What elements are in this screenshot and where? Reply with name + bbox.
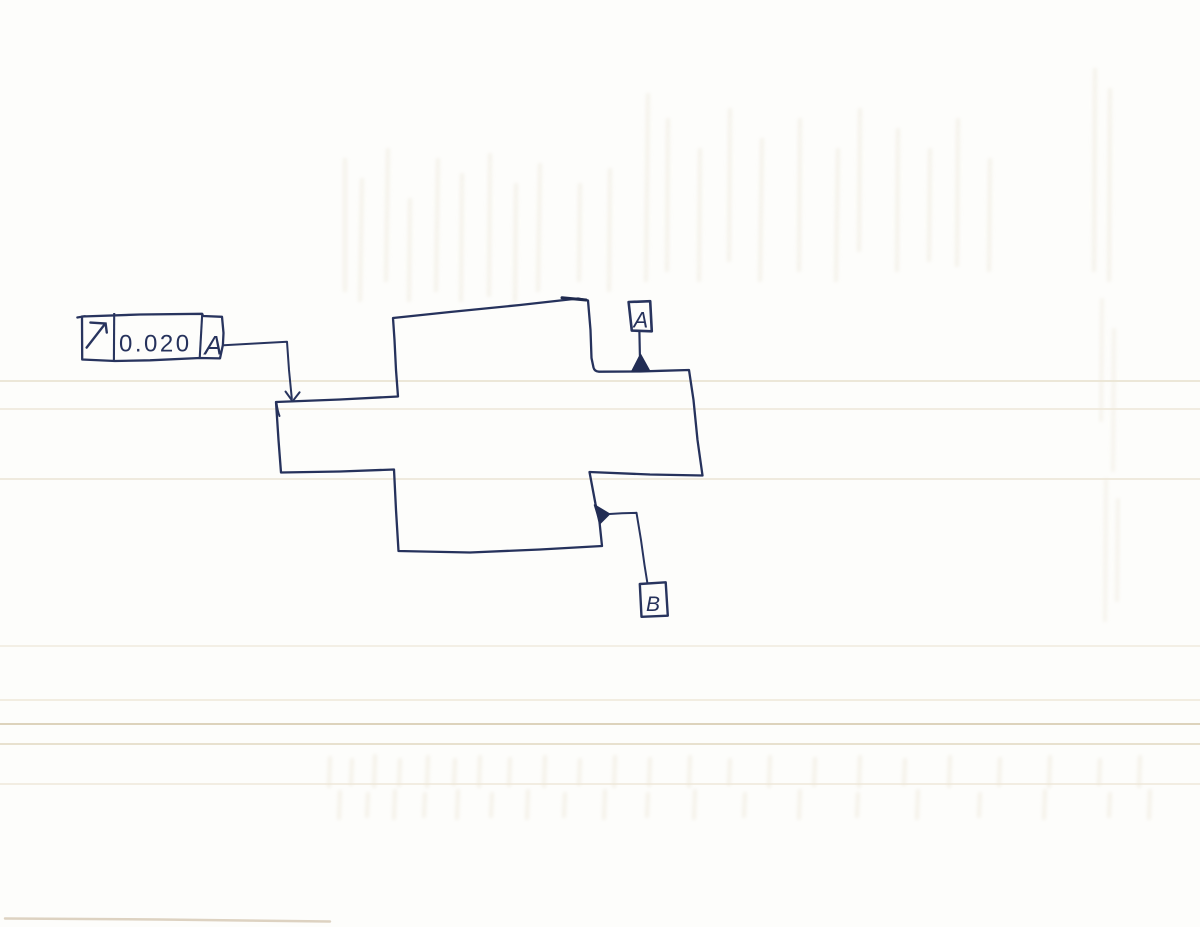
svg-text:A: A	[632, 308, 649, 333]
svg-text:A: A	[203, 331, 223, 361]
svg-text:B: B	[646, 593, 660, 616]
svg-text:0.020: 0.020	[119, 331, 192, 358]
